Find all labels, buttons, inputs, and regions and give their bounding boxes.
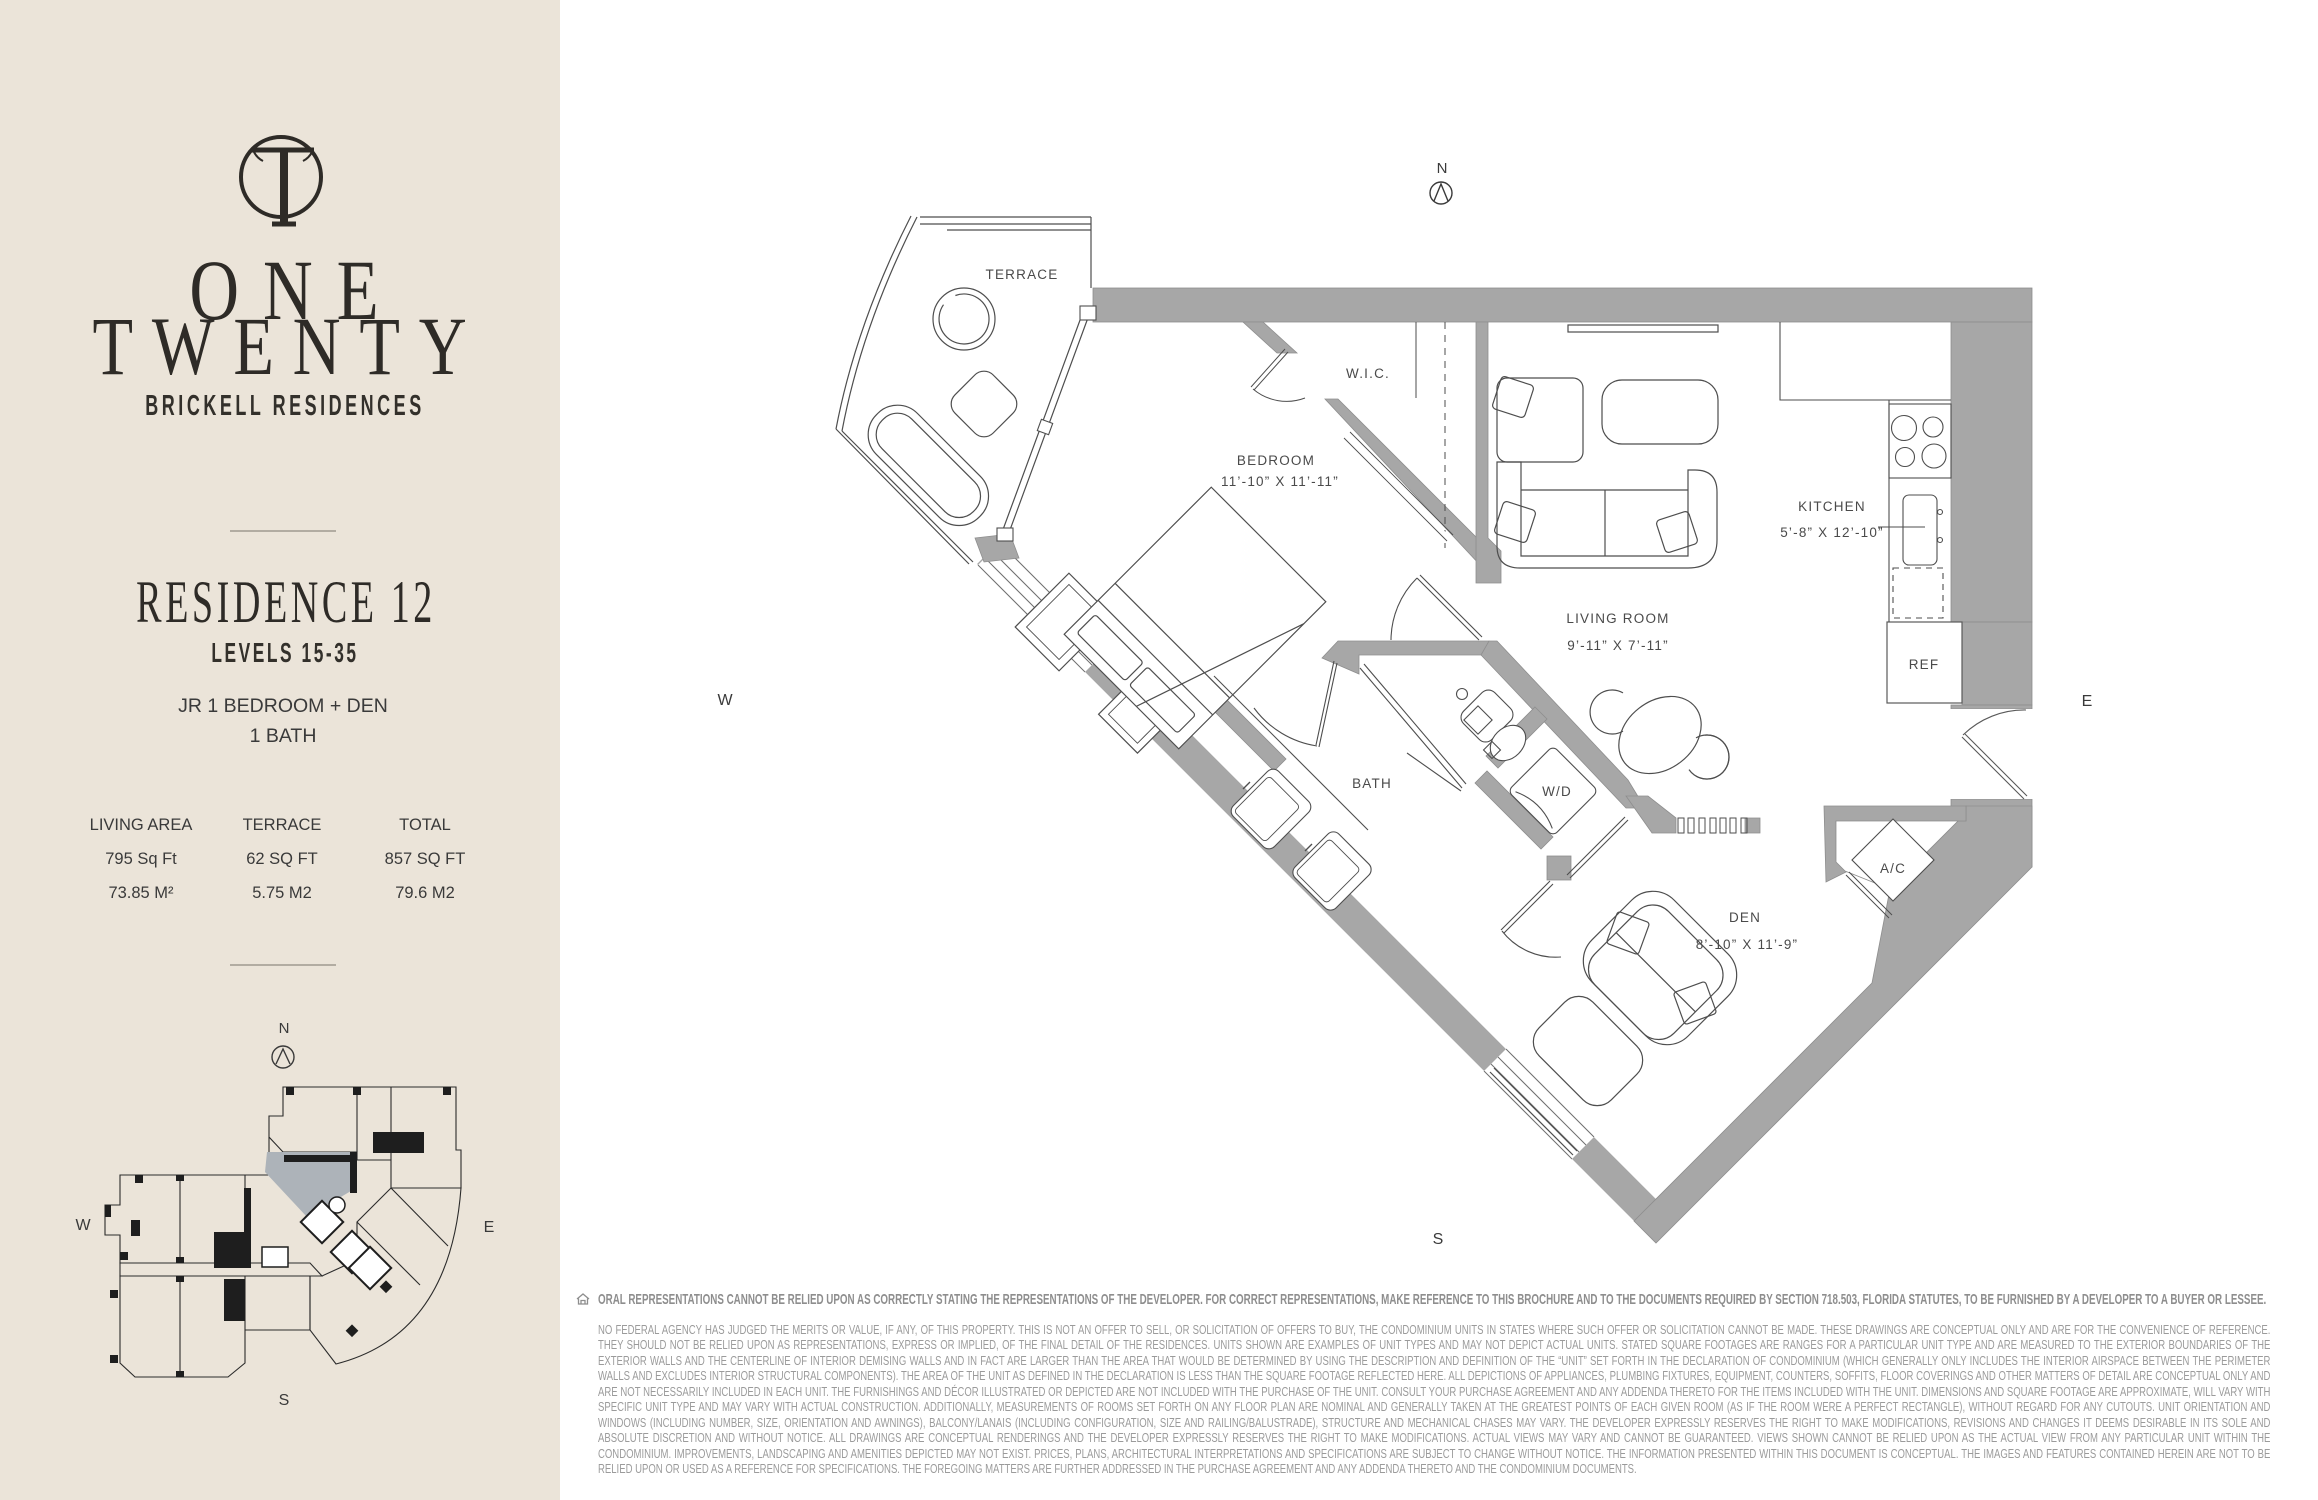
svg-text:BRICKELL RESIDENCES: BRICKELL RESIDENCES bbox=[145, 390, 424, 422]
svg-text:795 Sq Ft: 795 Sq Ft bbox=[105, 850, 177, 868]
svg-text:KITCHEN: KITCHEN bbox=[1798, 499, 1866, 514]
svg-text:11’-10” X 11’-11”: 11’-10” X 11’-11” bbox=[1221, 474, 1339, 489]
svg-text:TERRACE: TERRACE bbox=[986, 267, 1059, 282]
svg-text:N: N bbox=[279, 1020, 290, 1037]
svg-text:W: W bbox=[75, 1217, 91, 1234]
svg-text:S: S bbox=[1433, 1231, 1444, 1248]
svg-text:LIVING ROOM: LIVING ROOM bbox=[1566, 611, 1669, 626]
svg-text:BATH: BATH bbox=[1352, 776, 1392, 791]
svg-text:62 SQ FT: 62 SQ FT bbox=[246, 850, 318, 868]
svg-text:E: E bbox=[2082, 693, 2093, 710]
svg-text:8’-10” X 11’-9”: 8’-10” X 11’-9” bbox=[1696, 937, 1799, 952]
svg-text:REF: REF bbox=[1909, 657, 1940, 672]
svg-text:JR 1 BEDROOM + DEN: JR 1 BEDROOM + DEN bbox=[178, 695, 388, 717]
svg-text:79.6 M2: 79.6 M2 bbox=[395, 884, 455, 902]
svg-text:W.I.C.: W.I.C. bbox=[1346, 366, 1390, 381]
svg-text:W/D: W/D bbox=[1542, 784, 1572, 799]
svg-text:TOTAL: TOTAL bbox=[399, 816, 451, 834]
svg-text:BEDROOM: BEDROOM bbox=[1237, 453, 1315, 468]
svg-text:9’-11” X 7’-11”: 9’-11” X 7’-11” bbox=[1567, 638, 1669, 653]
svg-text:N: N bbox=[1437, 160, 1448, 177]
svg-text:5’-8” X 12’-10”: 5’-8” X 12’-10” bbox=[1780, 525, 1884, 540]
svg-text:TWENTY: TWENTY bbox=[93, 301, 486, 393]
svg-text:A/C: A/C bbox=[1880, 861, 1906, 876]
svg-text:5.75 M2: 5.75 M2 bbox=[252, 884, 312, 902]
svg-text:W: W bbox=[717, 692, 733, 709]
svg-text:73.85 M²: 73.85 M² bbox=[108, 884, 174, 902]
svg-text:S: S bbox=[279, 1392, 290, 1409]
svg-text:857 SQ FT: 857 SQ FT bbox=[385, 850, 466, 868]
svg-text:LIVING AREA: LIVING AREA bbox=[90, 816, 193, 834]
svg-text:DEN: DEN bbox=[1729, 910, 1761, 925]
svg-text:E: E bbox=[484, 1219, 495, 1236]
svg-text:TERRACE: TERRACE bbox=[243, 816, 322, 834]
svg-text:RESIDENCE 12: RESIDENCE 12 bbox=[136, 568, 436, 635]
svg-text:1 BATH: 1 BATH bbox=[250, 725, 317, 747]
svg-text:LEVELS 15-35: LEVELS 15-35 bbox=[211, 637, 358, 668]
